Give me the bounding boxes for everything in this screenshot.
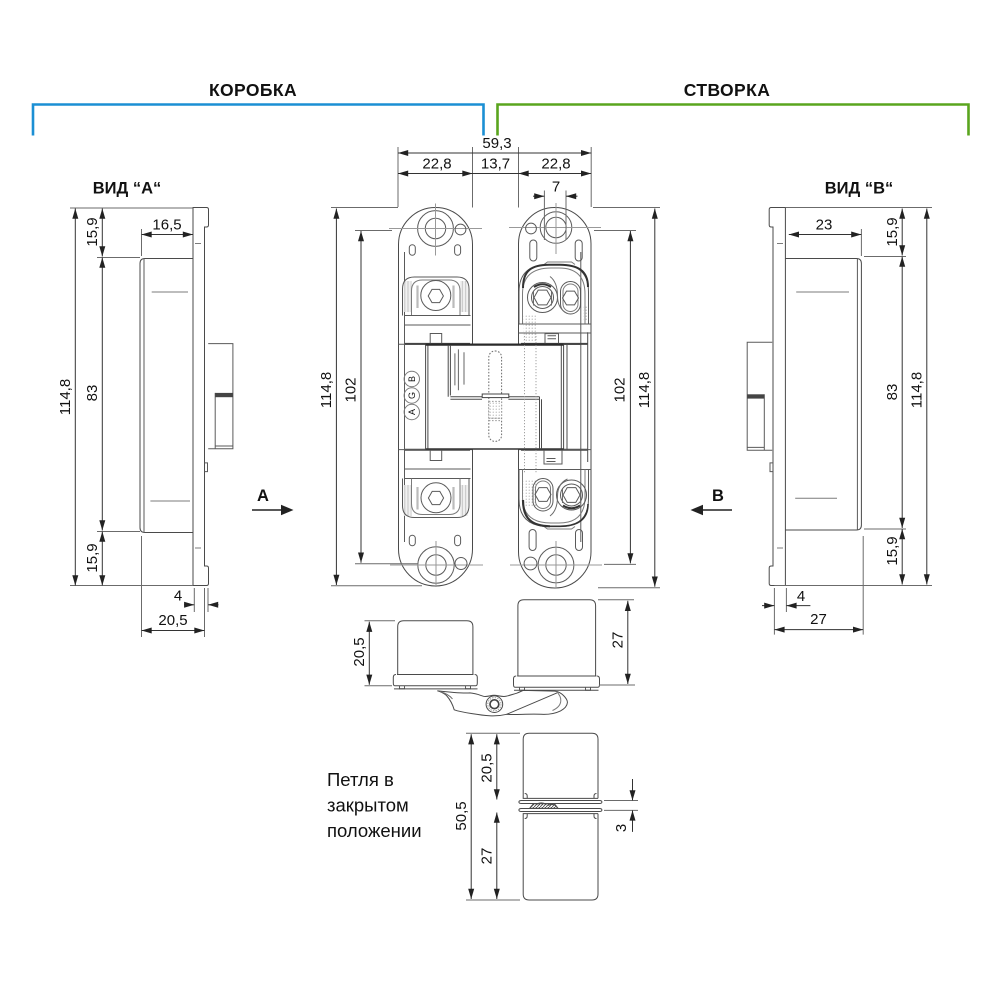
svg-text:114,8: 114,8 — [908, 372, 925, 408]
svg-text:КОРОБКА: КОРОБКА — [209, 80, 297, 100]
svg-text:7: 7 — [552, 179, 560, 196]
svg-text:СТВОРКА: СТВОРКА — [684, 80, 771, 100]
svg-text:15,9: 15,9 — [84, 543, 101, 572]
svg-text:20,5: 20,5 — [351, 637, 368, 666]
svg-text:20,5: 20,5 — [158, 612, 187, 629]
svg-text:B: B — [407, 376, 417, 382]
svg-text:114,8: 114,8 — [636, 372, 653, 408]
svg-text:22,8: 22,8 — [541, 156, 570, 173]
svg-text:27: 27 — [478, 848, 495, 865]
svg-text:22,8: 22,8 — [422, 156, 451, 173]
svg-text:положении: положении — [327, 820, 422, 841]
svg-text:закрытом: закрытом — [327, 794, 409, 815]
svg-text:Петля в: Петля в — [327, 769, 394, 790]
svg-text:23: 23 — [816, 217, 833, 234]
svg-text:4: 4 — [797, 588, 805, 605]
svg-text:В: В — [712, 487, 724, 505]
svg-text:83: 83 — [884, 384, 901, 401]
svg-text:102: 102 — [612, 377, 629, 402]
svg-text:15,9: 15,9 — [84, 217, 101, 246]
svg-text:16,5: 16,5 — [152, 217, 181, 234]
svg-text:13,7: 13,7 — [481, 156, 510, 173]
svg-text:20,5: 20,5 — [478, 753, 495, 782]
svg-text:83: 83 — [84, 385, 101, 402]
svg-text:А: А — [257, 487, 269, 505]
svg-text:114,8: 114,8 — [57, 379, 74, 415]
svg-text:ВИД “В“: ВИД “В“ — [825, 180, 894, 198]
svg-text:ВИД “А“: ВИД “А“ — [93, 180, 162, 198]
svg-text:27: 27 — [609, 632, 626, 649]
svg-text:59,3: 59,3 — [482, 135, 511, 152]
svg-text:102: 102 — [343, 377, 360, 402]
svg-text:A: A — [407, 409, 417, 415]
svg-text:3: 3 — [613, 824, 630, 832]
svg-text:4: 4 — [174, 588, 182, 605]
svg-text:27: 27 — [810, 611, 827, 628]
svg-text:50,5: 50,5 — [453, 801, 470, 830]
svg-text:114,8: 114,8 — [318, 372, 335, 408]
svg-text:15,9: 15,9 — [884, 217, 901, 246]
svg-text:G: G — [407, 392, 417, 399]
svg-text:15,9: 15,9 — [884, 536, 901, 565]
